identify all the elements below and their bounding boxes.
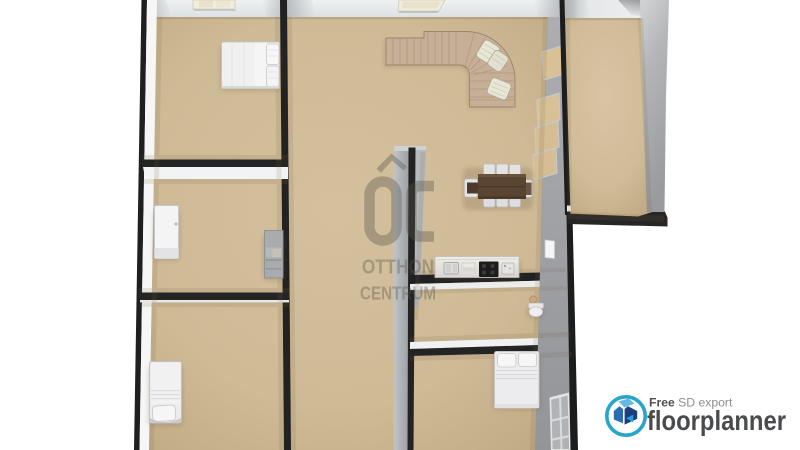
svg-text:floorplanner: floorplanner [647, 405, 786, 436]
svg-text:CENTRUM: CENTRUM [360, 283, 436, 304]
svg-text:OTTHON: OTTHON [362, 256, 434, 279]
